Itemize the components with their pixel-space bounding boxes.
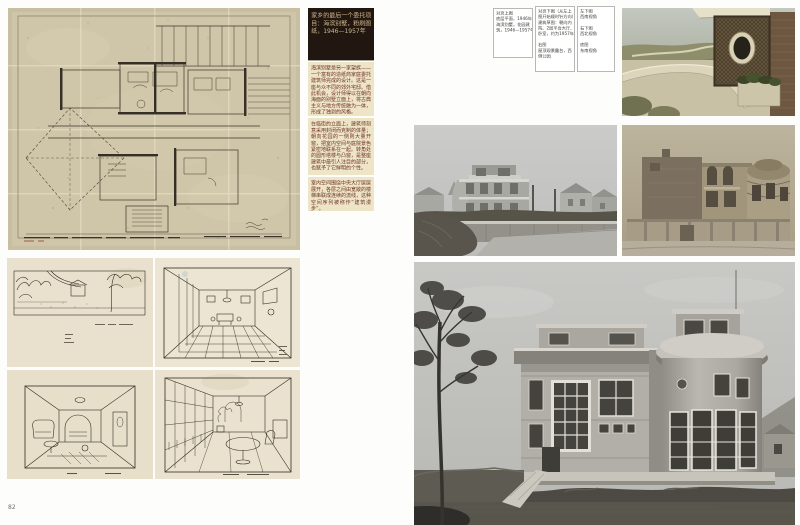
sketch-interior-hall (155, 258, 300, 367)
body-paragraph-2: 在临街的立面上，建筑师刻意采用封闭而克制的体量；朝向花园的一侧则大量开窗，把室内… (308, 118, 374, 175)
villa-street-illustration (414, 125, 617, 256)
villa-southeast-illustration (414, 262, 795, 525)
interior-hall-drawing (155, 258, 300, 367)
body-paragraph-3: 室内空间围绕中央大厅层层展开，各层之间由宽敞的楼梯串联成连续的流线，这种空间序列… (308, 177, 374, 211)
intro-caption-text: 家乡的最后一个委托项目：海滨别墅，粉刷图纸，1946—1957年 (308, 8, 377, 39)
sketch-garden-panorama (7, 258, 153, 367)
roof-terrace-illustration (622, 8, 795, 116)
body-paragraph-1: 海滨别墅是另一家望族——一个富有的造纸商家庭委托建筑师完成的设计。这是一座与众不… (308, 62, 374, 116)
page-number: 82 (8, 504, 16, 511)
caption-box-views: 左下图 西南视角 右下图 西北视角 底图 东南视角 (577, 6, 615, 72)
intro-caption-box: 家乡的最后一个委托项目：海滨别墅，粉刷图纸，1946—1957年 (308, 8, 374, 60)
photo-villa-northwest-view (622, 125, 795, 256)
sketch-interior-fireplace (7, 370, 153, 479)
interior-table-drawing (155, 370, 300, 479)
villa-northwest-illustration (622, 125, 795, 256)
photo-villa-southeast-view (414, 262, 795, 525)
floor-plan-drawing (8, 8, 300, 250)
floor-plan-image (8, 8, 300, 250)
caption-text-opposite-bottom: 对页下图（从左上 图开始顺时针方向） 建筑草图：朝向内 院、2层平台大厅、 卧室… (536, 7, 575, 62)
garden-panorama-drawing (7, 258, 153, 367)
caption-box-opposite-bottom: 对页下图（从左上 图开始顺时针方向） 建筑草图：朝向内 院、2层平台大厅、 卧室… (535, 6, 575, 72)
interior-fireplace-drawing (7, 370, 153, 479)
photo-roof-terrace-color (622, 8, 795, 116)
caption-box-opposite-top: 对页上图 底层平面，1946年， 海滨别墅，花园建 筑，1946—1957年 (493, 8, 533, 58)
book-spread: 家乡的最后一个委托项目：海滨别墅，粉刷图纸，1946—1957年 海滨别墅是另一… (0, 0, 800, 525)
sketch-interior-table (155, 370, 300, 479)
caption-text-opposite-top: 对页上图 底层平面，1946年， 海滨别墅，花园建 筑，1946—1957年 (494, 9, 533, 36)
photo-villa-street-view (414, 125, 617, 256)
caption-text-views: 左下图 西南视角 右下图 西北视角 底图 东南视角 (578, 7, 615, 56)
